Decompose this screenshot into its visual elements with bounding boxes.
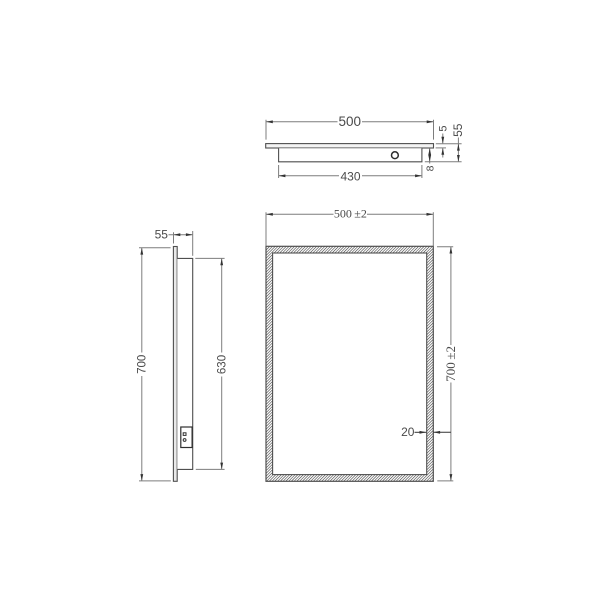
svg-text:5: 5 xyxy=(437,125,449,131)
svg-text:700: 700 xyxy=(137,355,149,374)
svg-text:20: 20 xyxy=(401,425,415,439)
svg-text:55: 55 xyxy=(451,123,465,137)
svg-text:55: 55 xyxy=(155,228,169,242)
svg-text:8: 8 xyxy=(425,165,437,171)
svg-text:700 ±2: 700 ±2 xyxy=(443,346,458,382)
svg-text:500: 500 xyxy=(339,114,362,129)
svg-text:430: 430 xyxy=(340,170,360,184)
svg-text:500 ±2: 500 ±2 xyxy=(334,207,367,221)
svg-text:630: 630 xyxy=(216,355,228,374)
